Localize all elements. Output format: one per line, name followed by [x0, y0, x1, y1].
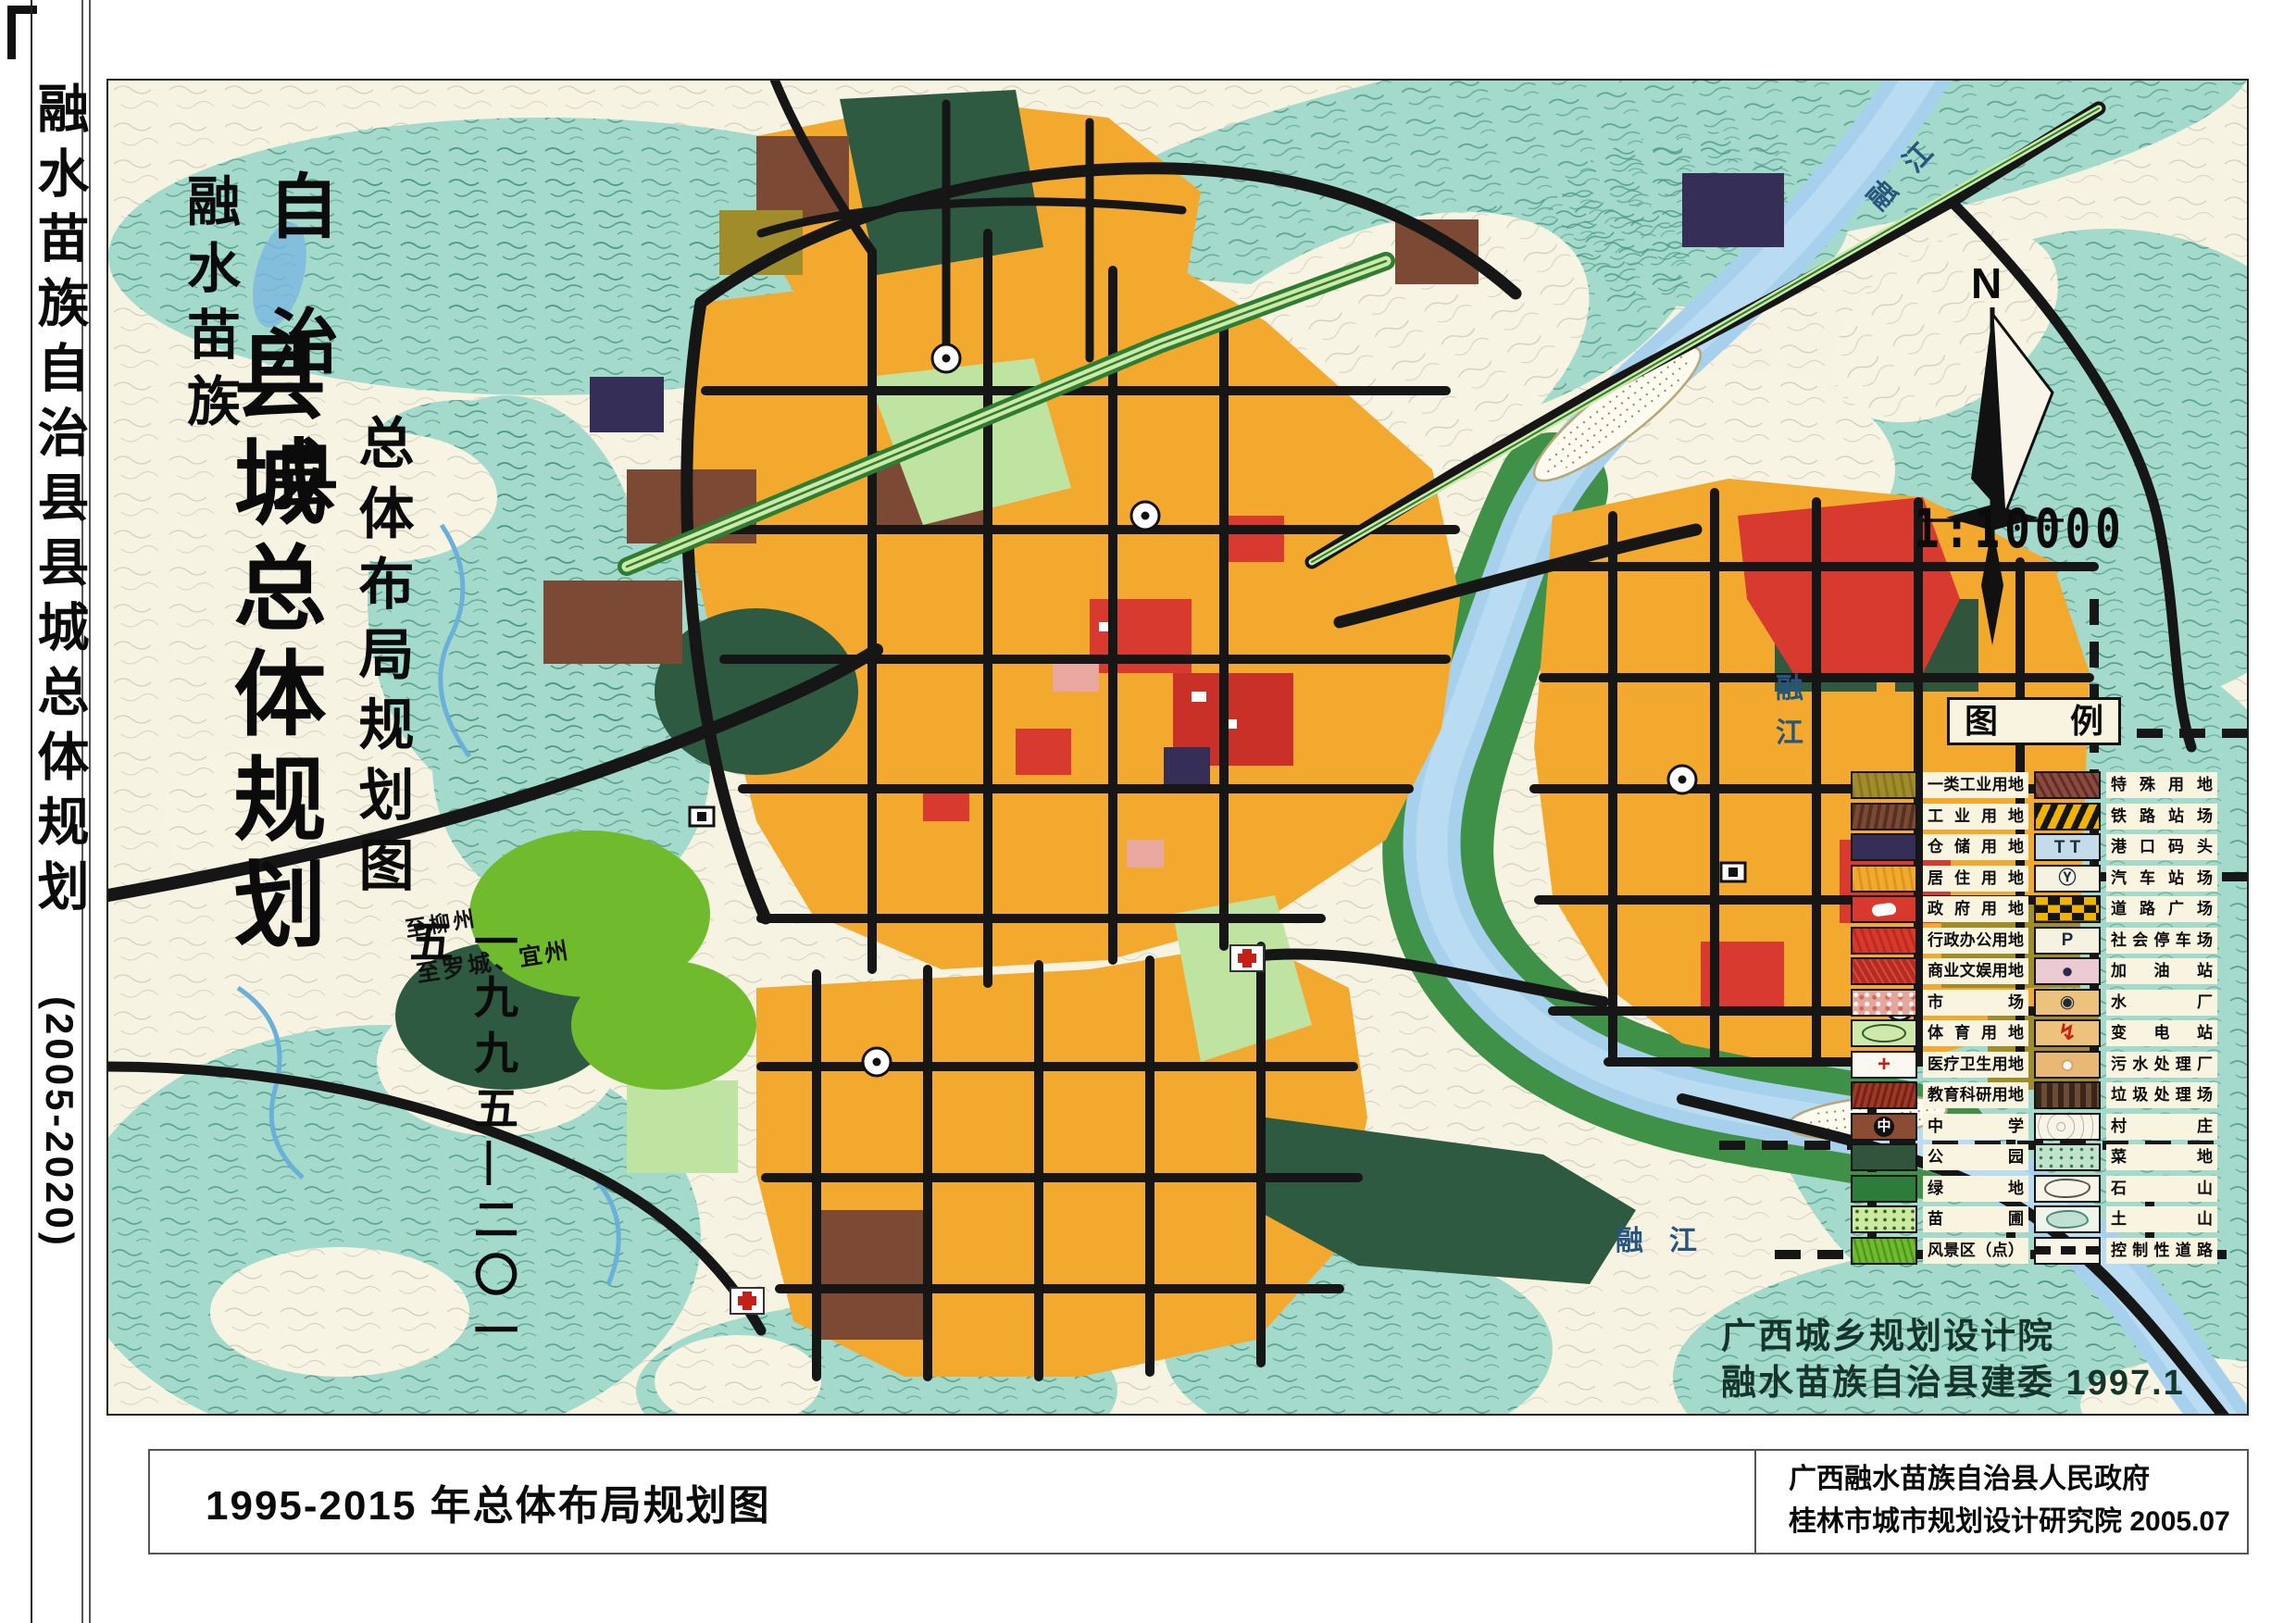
legend-title: 图例: [1947, 697, 2121, 745]
legend-label: 垃圾处理场: [2106, 1082, 2217, 1108]
map-period: 一九九五—二〇一五: [393, 918, 523, 1414]
legend-swatch: P: [2034, 927, 2101, 955]
legend-label: 一类工业用地: [1923, 772, 2028, 798]
legend-label: 变电站: [2106, 1020, 2217, 1046]
document-title: 融水苗族自治县县城总体规划: [22, 81, 97, 924]
legend-swatch: [1851, 1237, 1917, 1265]
legend-entry-right: 控制性道路: [2034, 1237, 2217, 1265]
legend-swatch-glyph: T T: [2054, 839, 2081, 856]
legend-label: 风景区（点）: [1923, 1238, 2028, 1264]
legend-label: 医疗卫生用地: [1923, 1052, 2028, 1078]
legend-entry-right: 村庄: [2034, 1113, 2217, 1141]
legend-swatch: [2034, 1205, 2101, 1233]
legend-label: 铁路站场: [2106, 804, 2217, 830]
legend-label: 政府用地: [1923, 896, 2028, 922]
legend-entry-right: P 社会停车场: [2034, 927, 2217, 955]
legend-entry-left: 市场: [1851, 989, 2028, 1017]
legend-row: 工业用地 铁路站场: [1851, 803, 2217, 830]
legend-entry-left: 居住用地: [1851, 865, 2028, 893]
legend-row: 公园 菜地: [1851, 1143, 2217, 1171]
legend-swatch: 中: [1851, 1113, 1917, 1141]
legend-row: + 医疗卫生用地 ● 污水处理厂: [1851, 1051, 2217, 1079]
legend-entry-left: 教育科研用地: [1851, 1081, 2028, 1109]
legend-label: 土山: [2106, 1206, 2217, 1232]
footer-box: 1995-2015 年总体布局规划图 广西融水苗族自治县人民政府 桂林市城市规划…: [148, 1449, 2249, 1554]
legend-label: 仓储用地: [1923, 834, 2028, 860]
legend-entry-right: Ⓨ 汽车站场: [2034, 865, 2217, 893]
legend-label: 污水处理厂: [2106, 1052, 2217, 1078]
legend-swatch: [2034, 1237, 2101, 1265]
legend-entry-left: 公园: [1851, 1143, 2028, 1171]
legend-swatch: [2034, 771, 2101, 799]
legend-entry-right: 垃圾处理场: [2034, 1081, 2217, 1109]
legend-swatch: ●: [2034, 957, 2101, 985]
legend-label: 石山: [2106, 1176, 2217, 1202]
legend-label: 道路广场: [2106, 896, 2217, 922]
legend-swatch: T T: [2034, 833, 2101, 861]
legend-entry-right: ● 污水处理厂: [2034, 1051, 2217, 1079]
footer-divider: [1754, 1451, 1756, 1553]
legend-entry-right: T T 港口码头: [2034, 833, 2217, 861]
legend-label: 工业用地: [1923, 804, 2028, 830]
legend-label: 社会停车场: [2106, 928, 2217, 954]
legend-swatch-glyph: ●: [2061, 1055, 2073, 1075]
legend-swatch: [1851, 895, 1917, 923]
legend-swatch: [1851, 1081, 1917, 1109]
legend-entry-left: 工业用地: [1851, 803, 2028, 830]
legend-row: 一类工业用地 特殊用地: [1851, 771, 2217, 799]
legend-swatch-glyph: Ⓨ: [2058, 869, 2076, 887]
page: { "sidebar": { "title": "融水苗族自治县县城总体规划",…: [0, 0, 2296, 1623]
legend-row: 市场 ◉ 水厂: [1851, 989, 2217, 1017]
legend-swatch: [2034, 1081, 2101, 1109]
legend-entry-left: 中 中学: [1851, 1113, 2028, 1141]
map-title-main: 县城总体规划: [205, 329, 339, 962]
legend-row: 居住用地 Ⓨ 汽车站场: [1851, 865, 2217, 893]
legend-label: 公园: [1923, 1144, 2028, 1170]
legend-swatch: [1851, 1205, 1917, 1233]
legend-swatch-glyph: +: [1878, 1054, 1890, 1076]
legend-row: 教育科研用地 垃圾处理场: [1851, 1081, 2217, 1109]
map-credit: 广西城乡规划设计院 融水苗族自治县建委 1997.1: [1721, 1314, 2185, 1406]
legend-label: 菜地: [2106, 1144, 2217, 1170]
legend-entry-left: 行政办公用地: [1851, 927, 2028, 955]
legend-swatch: [1851, 927, 1917, 955]
legend-entry-left: 体育用地: [1851, 1019, 2028, 1047]
legend-swatch-glyph: ↯: [2058, 1022, 2077, 1044]
legend-swatch: [1851, 833, 1917, 861]
legend-label: 教育科研用地: [1923, 1082, 2028, 1108]
legend-entry-right: 铁路站场: [2034, 803, 2217, 830]
legend-entry-left: 一类工业用地: [1851, 771, 2028, 799]
legend-label: 中学: [1923, 1114, 2028, 1140]
river-label-rongjiang-1: 融江: [1766, 673, 1806, 762]
legend-row: 中 中学 村庄: [1851, 1113, 2217, 1141]
publisher-block: 广西融水苗族自治县人民政府 桂林市城市规划设计研究院 2005.07: [1789, 1458, 2230, 1543]
legend-swatch: [1851, 1175, 1917, 1203]
legend-label: 特殊用地: [2106, 772, 2217, 798]
legend-swatch: [1851, 1019, 1917, 1047]
legend-row: 风景区（点） 控制性道路: [1851, 1237, 2217, 1265]
legend-entry-left: 商业文娱用地: [1851, 957, 2028, 985]
legend-label: 村庄: [2106, 1114, 2217, 1140]
legend-row: 体育用地 ↯ 变电站: [1851, 1019, 2217, 1047]
river-label-rongjiang-2: 融江: [1616, 1217, 1723, 1258]
legend-row: 绿地 石山: [1851, 1175, 2217, 1203]
legend-label: 绿地: [1923, 1176, 2028, 1202]
legend-label: 商业文娱用地: [1923, 958, 2028, 984]
legend-entry-right: ● 加油站: [2034, 957, 2217, 985]
legend-label: 体育用地: [1923, 1020, 2028, 1046]
figure-caption: 1995-2015 年总体布局规划图: [206, 1472, 771, 1531]
legend-label: 水厂: [2106, 990, 2217, 1016]
legend-entry-right: ↯ 变电站: [2034, 1019, 2217, 1047]
legend-row: 苗圃 土山: [1851, 1205, 2217, 1233]
legend-label: 行政办公用地: [1923, 928, 2028, 954]
north-label: N: [1971, 258, 2002, 308]
publisher-line1: 广西融水苗族自治县人民政府: [1789, 1458, 2230, 1501]
legend-row: 行政办公用地 P 社会停车场: [1851, 927, 2217, 955]
legend-swatch: ◉: [2034, 989, 2101, 1017]
legend-entry-right: 菜地: [2034, 1143, 2217, 1171]
legend-rows: 一类工业用地 特殊用地 工业用地 铁路站场 仓储用地 T T 港口码头 居住用地: [1851, 771, 2217, 1265]
legend-swatch: Ⓨ: [2034, 865, 2101, 893]
legend-entry-right: 土山: [2034, 1205, 2217, 1233]
legend-label: 苗圃: [1923, 1206, 2028, 1232]
corner-mark-vertical: [7, 6, 16, 59]
legend-swatch: ●: [2034, 1051, 2101, 1079]
publisher-line2: 桂林市城市规划设计研究院 2005.07: [1789, 1501, 2230, 1543]
legend-swatch: [2034, 1143, 2101, 1171]
legend-entry-left: 仓储用地: [1851, 833, 2028, 861]
legend-entry-left: + 医疗卫生用地: [1851, 1051, 2028, 1079]
legend-entry-left: 苗圃: [1851, 1205, 2028, 1233]
legend-swatch: +: [1851, 1051, 1917, 1079]
legend-entry-left: 风景区（点）: [1851, 1237, 2028, 1265]
map-credit-line2: 融水苗族自治县建委 1997.1: [1721, 1360, 2185, 1406]
legend-label: 汽车站场: [2106, 866, 2217, 892]
legend-entry-right: 道路广场: [2034, 895, 2217, 923]
legend-entry-left: 绿地: [1851, 1175, 2028, 1203]
legend-entry-right: ◉ 水厂: [2034, 989, 2217, 1017]
legend-label: 居住用地: [1923, 866, 2028, 892]
map-scale: 1:10000: [1914, 497, 2126, 560]
document-period: (2005-2020): [37, 996, 81, 1249]
map-sheet: 融水苗族 自治县 县城总体规划 总体布局规划图 一九九五—二〇一五 至柳州 至罗…: [106, 79, 2249, 1416]
legend-row: 政府用地 道路广场: [1851, 895, 2217, 923]
legend-label: 加油站: [2106, 958, 2217, 984]
legend-swatch: [2034, 803, 2101, 830]
legend-entry-right: 特殊用地: [2034, 771, 2217, 799]
legend-entry-right: 石山: [2034, 1175, 2217, 1203]
legend-swatch: [1851, 771, 1917, 799]
legend-swatch: [1851, 803, 1917, 830]
legend-swatch: [1851, 865, 1917, 893]
legend-swatch-glyph: ●: [2061, 961, 2073, 981]
legend-label: 港口码头: [2106, 834, 2217, 860]
legend-swatch: [2034, 1113, 2101, 1141]
legend-swatch: [1851, 1143, 1917, 1171]
legend-swatch-glyph: ◉: [2060, 993, 2076, 1011]
map-credit-line1: 广西城乡规划设计院: [1721, 1314, 2185, 1360]
document-title-column: 融水苗族自治县县城总体规划 (2005-2020): [22, 81, 97, 1563]
legend-swatch-glyph: 中: [1874, 1117, 1894, 1137]
legend-swatch-glyph: P: [2062, 931, 2074, 949]
legend-swatch: [2034, 1175, 2101, 1203]
map-subtitle: 总体布局规划图: [342, 414, 422, 906]
legend-swatch: [1851, 957, 1917, 985]
legend-row: 仓储用地 T T 港口码头: [1851, 833, 2217, 861]
legend-row: 商业文娱用地 ● 加油站: [1851, 957, 2217, 985]
legend-swatch: [2034, 895, 2101, 923]
legend-swatch: [1851, 989, 1917, 1017]
legend-entry-left: 政府用地: [1851, 895, 2028, 923]
legend-label: 控制性道路: [2106, 1238, 2217, 1264]
legend-swatch: ↯: [2034, 1019, 2101, 1047]
legend-label: 市场: [1923, 990, 2028, 1016]
